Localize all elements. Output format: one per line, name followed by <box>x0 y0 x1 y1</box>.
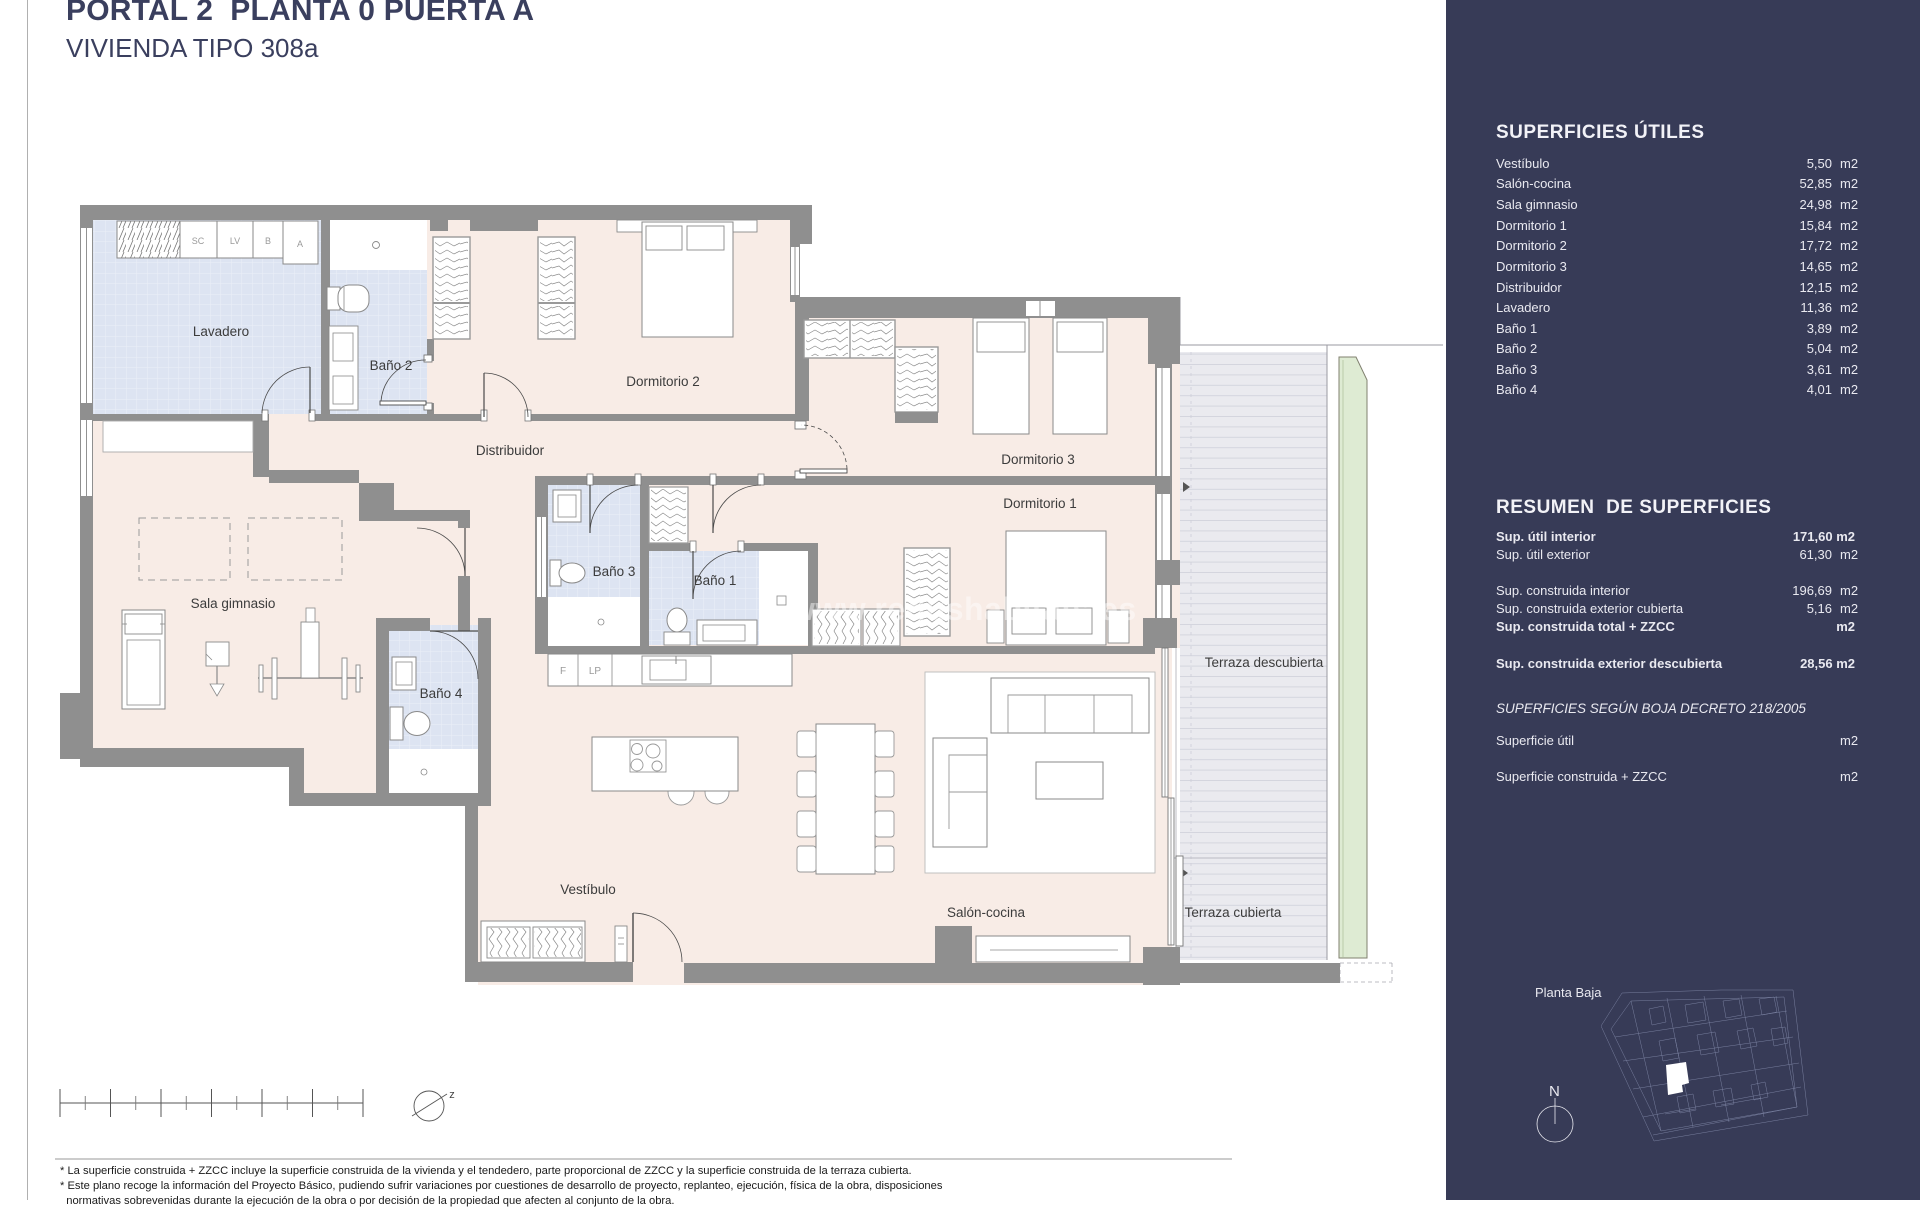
svg-text:LP: LP <box>589 666 602 677</box>
svg-text:Distribuidor: Distribuidor <box>476 443 545 458</box>
svg-text:Terraza descubierta: Terraza descubierta <box>1205 655 1324 670</box>
svg-text:Sala gimnasio: Sala gimnasio <box>191 596 276 611</box>
svg-text:N: N <box>1549 1083 1560 1100</box>
svg-text:www.regushabitats.es: www.regushabitats.es <box>789 591 1137 627</box>
svg-text:Terraza cubierta: Terraza cubierta <box>1185 905 1282 920</box>
svg-text:Lavadero: Lavadero <box>193 324 249 339</box>
svg-text:Dormitorio 1: Dormitorio 1 <box>1003 496 1077 511</box>
svg-text:Baño 1: Baño 1 <box>694 573 737 588</box>
svg-text:A: A <box>297 239 303 249</box>
svg-text:Dormitorio 2: Dormitorio 2 <box>626 374 700 389</box>
svg-text:Baño 4: Baño 4 <box>420 686 463 701</box>
svg-text:SC: SC <box>192 236 205 246</box>
svg-text:Dormitorio 3: Dormitorio 3 <box>1001 452 1075 467</box>
svg-text:Vestíbulo: Vestíbulo <box>560 882 616 897</box>
svg-text:B: B <box>265 236 271 246</box>
svg-text:Baño 3: Baño 3 <box>593 564 636 579</box>
svg-text:Salón-cocina: Salón-cocina <box>947 905 1026 920</box>
svg-text:LV: LV <box>230 236 240 246</box>
svg-text:F: F <box>560 666 566 677</box>
svg-text:z: z <box>449 1089 455 1101</box>
svg-text:Baño 2: Baño 2 <box>370 358 413 373</box>
